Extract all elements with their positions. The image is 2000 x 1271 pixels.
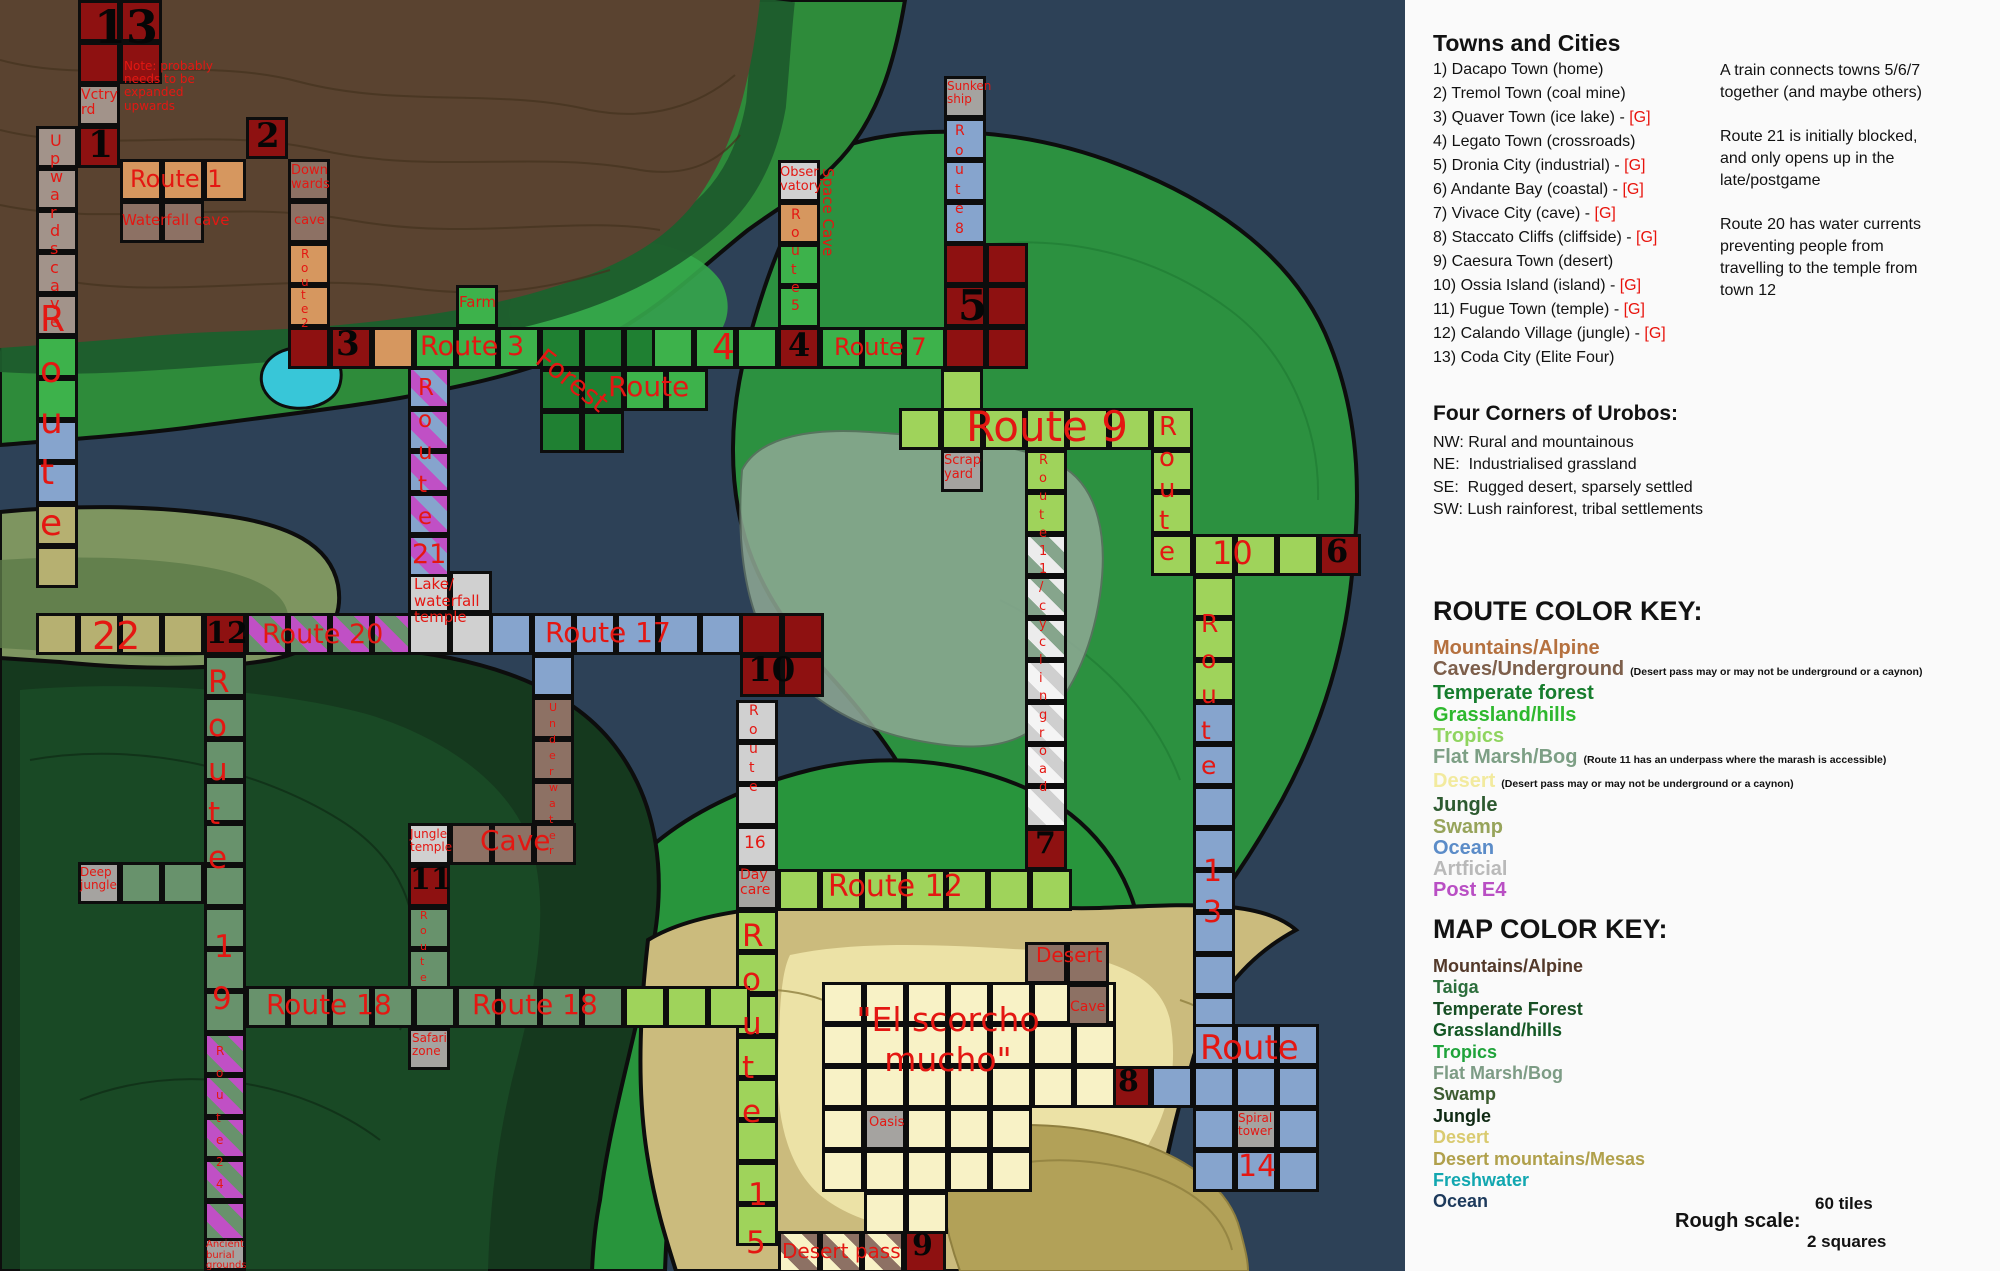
map-label: Sunken ship (947, 80, 991, 106)
route-key-item: Ocean (1433, 838, 1922, 859)
map-label: Route 9 (966, 404, 1128, 450)
map-label: R o u t e (40, 294, 65, 550)
map-label: Ancient burial grounds (206, 1240, 247, 1271)
map-label: R o u t e 2 (301, 248, 309, 331)
town-number-label: 6 (1326, 536, 1348, 566)
sidebar-notes: A train connects towns 5/6/7 together (a… (1720, 60, 1925, 324)
map-key-item: Flat Marsh/Bog (1433, 1063, 1645, 1084)
town-list-item: 9) Caesura Town (desert) (1433, 250, 1666, 274)
map-label: Route 12 (828, 870, 963, 903)
map-label: 1 (748, 1178, 768, 1212)
gym-marker: [G] (1624, 157, 1645, 174)
map-key-item: Ocean (1433, 1191, 1645, 1212)
region-map: 13Vctry rdNote: probably needs to be exp… (0, 0, 1405, 1271)
route-key-item: Desert(Desert pass may or may not be und… (1433, 771, 1922, 795)
map-key-title: MAP COLOR KEY: (1433, 914, 1668, 945)
route-key-note: (Route 11 has an underpass where the mar… (1583, 754, 1886, 766)
map-label: R o u t e (208, 660, 230, 880)
map-label: R o u t e 2 4 (216, 1040, 224, 1195)
map-key-item: Freshwater (1433, 1170, 1645, 1191)
route-key-item: Temperate forest (1433, 683, 1922, 704)
map-key-item: Taiga (1433, 977, 1645, 998)
map-label: Route 20 (262, 620, 383, 650)
route-key-label: Jungle (1433, 794, 1497, 816)
route-key-note: (Desert pass may or may not be undergrou… (1501, 778, 1793, 790)
town-number-label: 5 (958, 286, 987, 326)
map-label: R o u t e (420, 908, 428, 985)
map-key-item: Jungle (1433, 1106, 1645, 1127)
route-key-label: Post E4 (1433, 879, 1506, 901)
route-color-key: Mountains/AlpineCaves/Underground(Desert… (1433, 638, 1922, 901)
map-label: 14 (1238, 1150, 1276, 1183)
town-number-label: 8 (1118, 1068, 1139, 1097)
gym-marker: [G] (1644, 325, 1665, 342)
town-number-label: 2 (256, 120, 280, 152)
route-key-title: ROUTE COLOR KEY: (1433, 596, 1703, 627)
map-label: 10 (1212, 536, 1253, 571)
town-list-item: 3) Quaver Town (ice lake) - [G] (1433, 106, 1666, 130)
map-label: Forest (530, 344, 614, 418)
map-label: Lake/ waterfall temple (414, 576, 480, 626)
route-key-note: (Desert pass may or may not be undergrou… (1630, 666, 1922, 678)
map-label: Route (1200, 1030, 1299, 1067)
gym-marker: [G] (1620, 277, 1641, 294)
town-number-label: 10 (748, 654, 795, 686)
route-key-item: Flat Marsh/Bog(Route 11 has an underpass… (1433, 747, 1922, 771)
map-label: Route 17 (545, 618, 671, 649)
route-key-item: Jungle (1433, 795, 1922, 816)
map-label: Note: probably needs to be expanded upwa… (124, 60, 213, 113)
town-number-label: 1 (88, 128, 113, 162)
legend-sidebar: Towns and Cities 1) Dacapo Town (home)2)… (1405, 0, 2000, 1271)
map-key-item: Swamp (1433, 1084, 1645, 1105)
corner-item: NW: Rural and mountainous (1433, 432, 1703, 454)
map-label: R o u t e (1201, 606, 1218, 784)
map-label: cave (294, 214, 325, 228)
gym-marker: [G] (1636, 229, 1657, 246)
route-key-label: Temperate forest (1433, 682, 1594, 704)
map-label: Scrap yard (944, 454, 981, 483)
scale-label: Rough scale: (1675, 1210, 1801, 1233)
map-color-key: Mountains/AlpineTaigaTemperate ForestGra… (1433, 956, 1645, 1213)
route-key-label: Artficial (1433, 858, 1507, 880)
route-key-item: Grassland/hills (1433, 705, 1922, 726)
map-label: Route 18 (266, 990, 392, 1021)
map-label: Vctry rd (81, 88, 118, 119)
gym-marker: [G] (1595, 205, 1616, 222)
town-list-item: 10) Ossia Island (island) - [G] (1433, 274, 1666, 298)
town-list-item: 8) Staccato Cliffs (cliffside) - [G] (1433, 226, 1666, 250)
map-label: Day care (740, 868, 770, 897)
town-number-label: 4 (788, 330, 810, 360)
route-key-item: Tropics (1433, 726, 1922, 747)
town-list-item: 13) Coda City (Elite Four) (1433, 346, 1666, 370)
map-label: Route 3 (420, 332, 524, 362)
route-key-label: Flat Marsh/Bog (1433, 746, 1577, 768)
town-number-label: 12 (206, 620, 248, 649)
scale-bottom-label: 2 squares (1807, 1232, 1886, 1252)
label-layer: 13Vctry rdNote: probably needs to be exp… (0, 0, 1405, 1271)
map-label: 1 3 (1203, 852, 1222, 933)
map-label: R o u t e 1 1 / c y c l i n g r o a d (1039, 452, 1048, 798)
route-key-label: Tropics (1433, 725, 1504, 747)
corner-item: SW: Lush rainforest, tribal settlements (1433, 499, 1703, 521)
map-label: Waterfall cave (122, 212, 229, 229)
town-list-item: 6) Andante Bay (coastal) - [G] (1433, 178, 1666, 202)
town-list-item: 4) Legato Town (crossroads) (1433, 130, 1666, 154)
map-label: Route 18 (472, 990, 598, 1021)
map-label: Space Cave (820, 168, 837, 256)
map-label: Farm (459, 294, 496, 311)
gym-marker: [G] (1629, 109, 1650, 126)
map-label: R o u t e (749, 702, 759, 796)
four-corners-title: Four Corners of Urobos: (1433, 402, 1678, 426)
map-key-item: Mountains/Alpine (1433, 956, 1645, 977)
sidebar-note: Route 20 has water currents preventing p… (1720, 214, 1925, 302)
route-key-label: Mountains/Alpine (1433, 637, 1600, 659)
map-label: Oasis (869, 1116, 904, 1130)
route-key-item: Post E4 (1433, 880, 1922, 901)
four-corners-list: NW: Rural and mountainousNE: Industriali… (1433, 432, 1703, 522)
map-key-item: Grassland/hills (1433, 1020, 1645, 1041)
town-number-label: 13 (94, 6, 158, 50)
map-label: Route 1 (130, 166, 223, 192)
route-key-item: Mountains/Alpine (1433, 638, 1922, 659)
map-label: Cave (480, 826, 551, 857)
map-label: Down wards (291, 164, 330, 193)
map-label: R o u t e (1159, 412, 1177, 568)
map-label: Cave (1070, 1000, 1105, 1015)
map-label: 5 (746, 1226, 766, 1260)
town-number-label: 9 (912, 1232, 933, 1261)
sidebar-note: Route 21 is initially blocked, and only … (1720, 126, 1925, 192)
town-list-item: 11) Fugue Town (temple) - [G] (1433, 298, 1666, 322)
map-key-item: Tropics (1433, 1042, 1645, 1063)
town-number-label: 3 (336, 328, 360, 360)
map-label: Desert (1036, 944, 1103, 966)
route-key-label: Swamp (1433, 816, 1503, 838)
town-list-item: 2) Tremol Town (coal mine) (1433, 82, 1666, 106)
town-number-label: 11 (410, 866, 452, 895)
map-key-item: Desert (1433, 1127, 1645, 1148)
corner-item: NE: Industrialised grassland (1433, 454, 1703, 476)
route-key-label: Caves/Underground (1433, 658, 1624, 680)
route-key-label: Ocean (1433, 837, 1494, 859)
map-label: R o u t e 8 (955, 122, 965, 240)
gym-marker: [G] (1624, 301, 1645, 318)
map-label: 22 (92, 616, 140, 658)
town-list-item: 7) Vivace City (cave) - [G] (1433, 202, 1666, 226)
town-list-item: 12) Calando Village (jungle) - [G] (1433, 322, 1666, 346)
map-label: Desert pass (782, 1240, 901, 1262)
town-number-label: 7 (1035, 830, 1056, 859)
map-label: Route 7 (834, 334, 927, 360)
map-label: Spiral tower (1238, 1112, 1272, 1138)
map-label: R o u t e (418, 372, 434, 533)
town-list-item: 5) Dronia City (industrial) - [G] (1433, 154, 1666, 178)
scale-top-label: 60 tiles (1815, 1194, 1873, 1214)
map-label: Obser vatory (780, 166, 822, 195)
towns-list: 1) Dacapo Town (home)2) Tremol Town (coa… (1433, 58, 1666, 370)
map-label: "El scorcho mucho" (840, 1000, 1056, 1079)
map-label: Jungle temple (410, 828, 452, 854)
corner-item: SE: Rugged desert, sparsely settled (1433, 477, 1703, 499)
route-key-item: Artficial (1433, 859, 1922, 880)
map-label: Deep jungle (80, 866, 117, 892)
map-label: 4 (712, 328, 735, 368)
map-key-item: Temperate Forest (1433, 999, 1645, 1020)
map-label: R o u t e (742, 914, 764, 1134)
map-label: R o u t e 5 (791, 206, 801, 315)
map-label: 16 (744, 834, 766, 853)
route-key-label: Desert (1433, 770, 1495, 792)
map-label: Safari zone (412, 1032, 447, 1058)
sidebar-note: A train connects towns 5/6/7 together (a… (1720, 60, 1925, 104)
map-label: Route (608, 372, 689, 403)
gym-marker: [G] (1622, 181, 1643, 198)
town-list-item: 1) Dacapo Town (home) (1433, 58, 1666, 82)
map-key-item: Desert mountains/Mesas (1433, 1149, 1645, 1170)
route-key-item: Caves/Underground(Desert pass may or may… (1433, 659, 1922, 683)
route-key-label: Grassland/hills (1433, 704, 1576, 726)
route-key-item: Swamp (1433, 817, 1922, 838)
map-label: 9 (212, 982, 232, 1016)
map-label: 21 (412, 540, 446, 570)
towns-title: Towns and Cities (1433, 30, 1620, 57)
map-label: 1 (214, 930, 234, 964)
